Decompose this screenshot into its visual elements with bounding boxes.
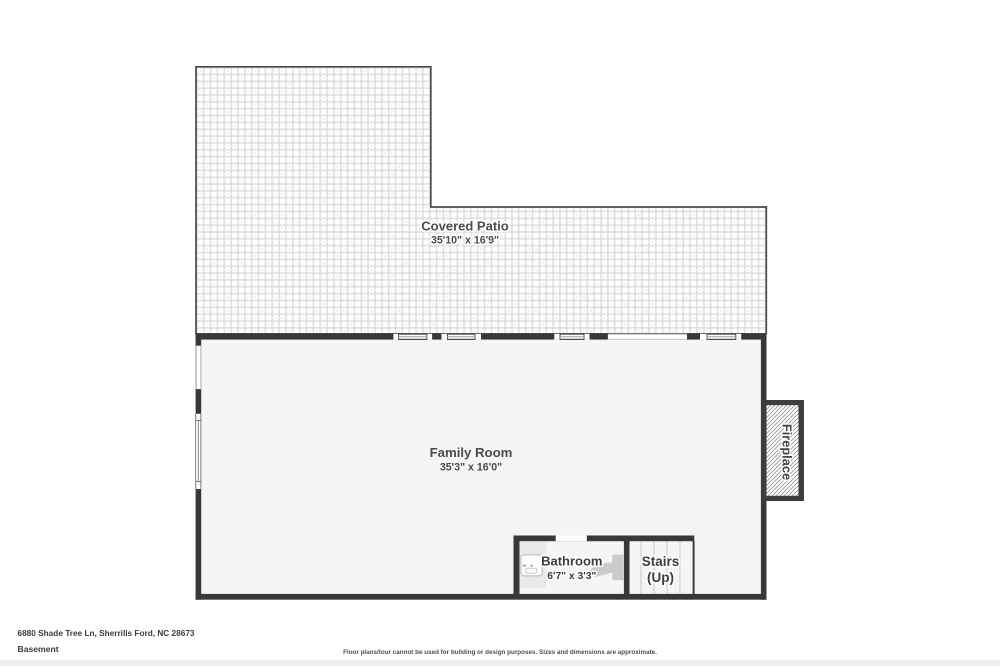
- svg-text:35'3" x 16'0": 35'3" x 16'0": [440, 462, 502, 474]
- svg-text:Fireplace: Fireplace: [780, 424, 795, 480]
- svg-text:6880 Shade Tree Ln, Sherrills: 6880 Shade Tree Ln, Sherrills Ford, NC 2…: [18, 629, 195, 638]
- svg-text:Bathroom: Bathroom: [541, 554, 602, 569]
- svg-text:Basement: Basement: [18, 644, 59, 654]
- svg-text:Floor plans/tour cannot be use: Floor plans/tour cannot be used for buil…: [343, 649, 657, 656]
- svg-text:Family Room: Family Room: [430, 445, 513, 460]
- svg-text:Stairs: Stairs: [642, 554, 680, 569]
- svg-text:6'7" x 3'3": 6'7" x 3'3": [547, 571, 596, 582]
- svg-text:Covered Patio: Covered Patio: [421, 218, 508, 233]
- svg-text:(Up): (Up): [647, 570, 674, 585]
- svg-text:35'10" x 16'9": 35'10" x 16'9": [431, 235, 499, 247]
